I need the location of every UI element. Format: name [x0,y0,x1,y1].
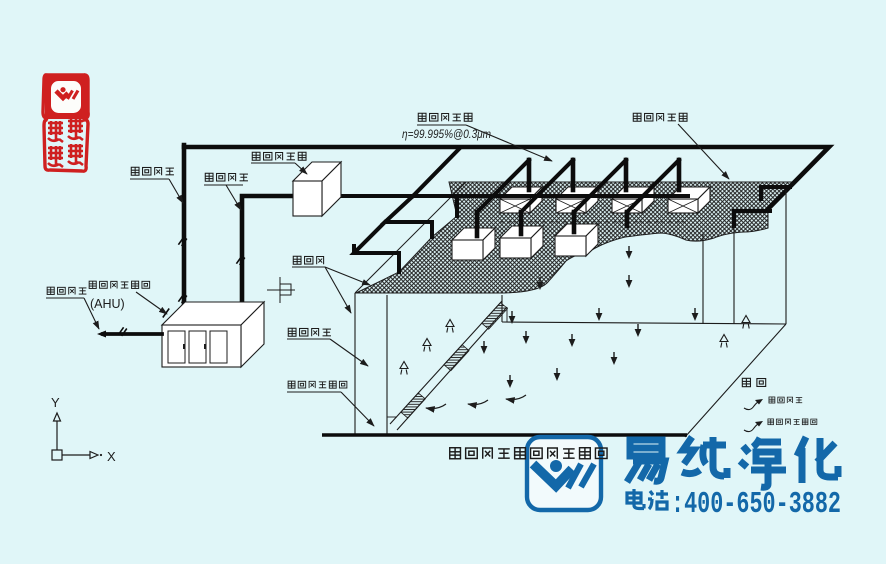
svg-text:(AHU): (AHU) [90,297,125,311]
svg-text:Y: Y [51,395,60,410]
svg-text::400-650-3882: :400-650-3882 [671,487,841,522]
svg-text:η=99.995%@0.3μm: η=99.995%@0.3μm [402,127,491,141]
svg-text:X: X [107,449,116,464]
